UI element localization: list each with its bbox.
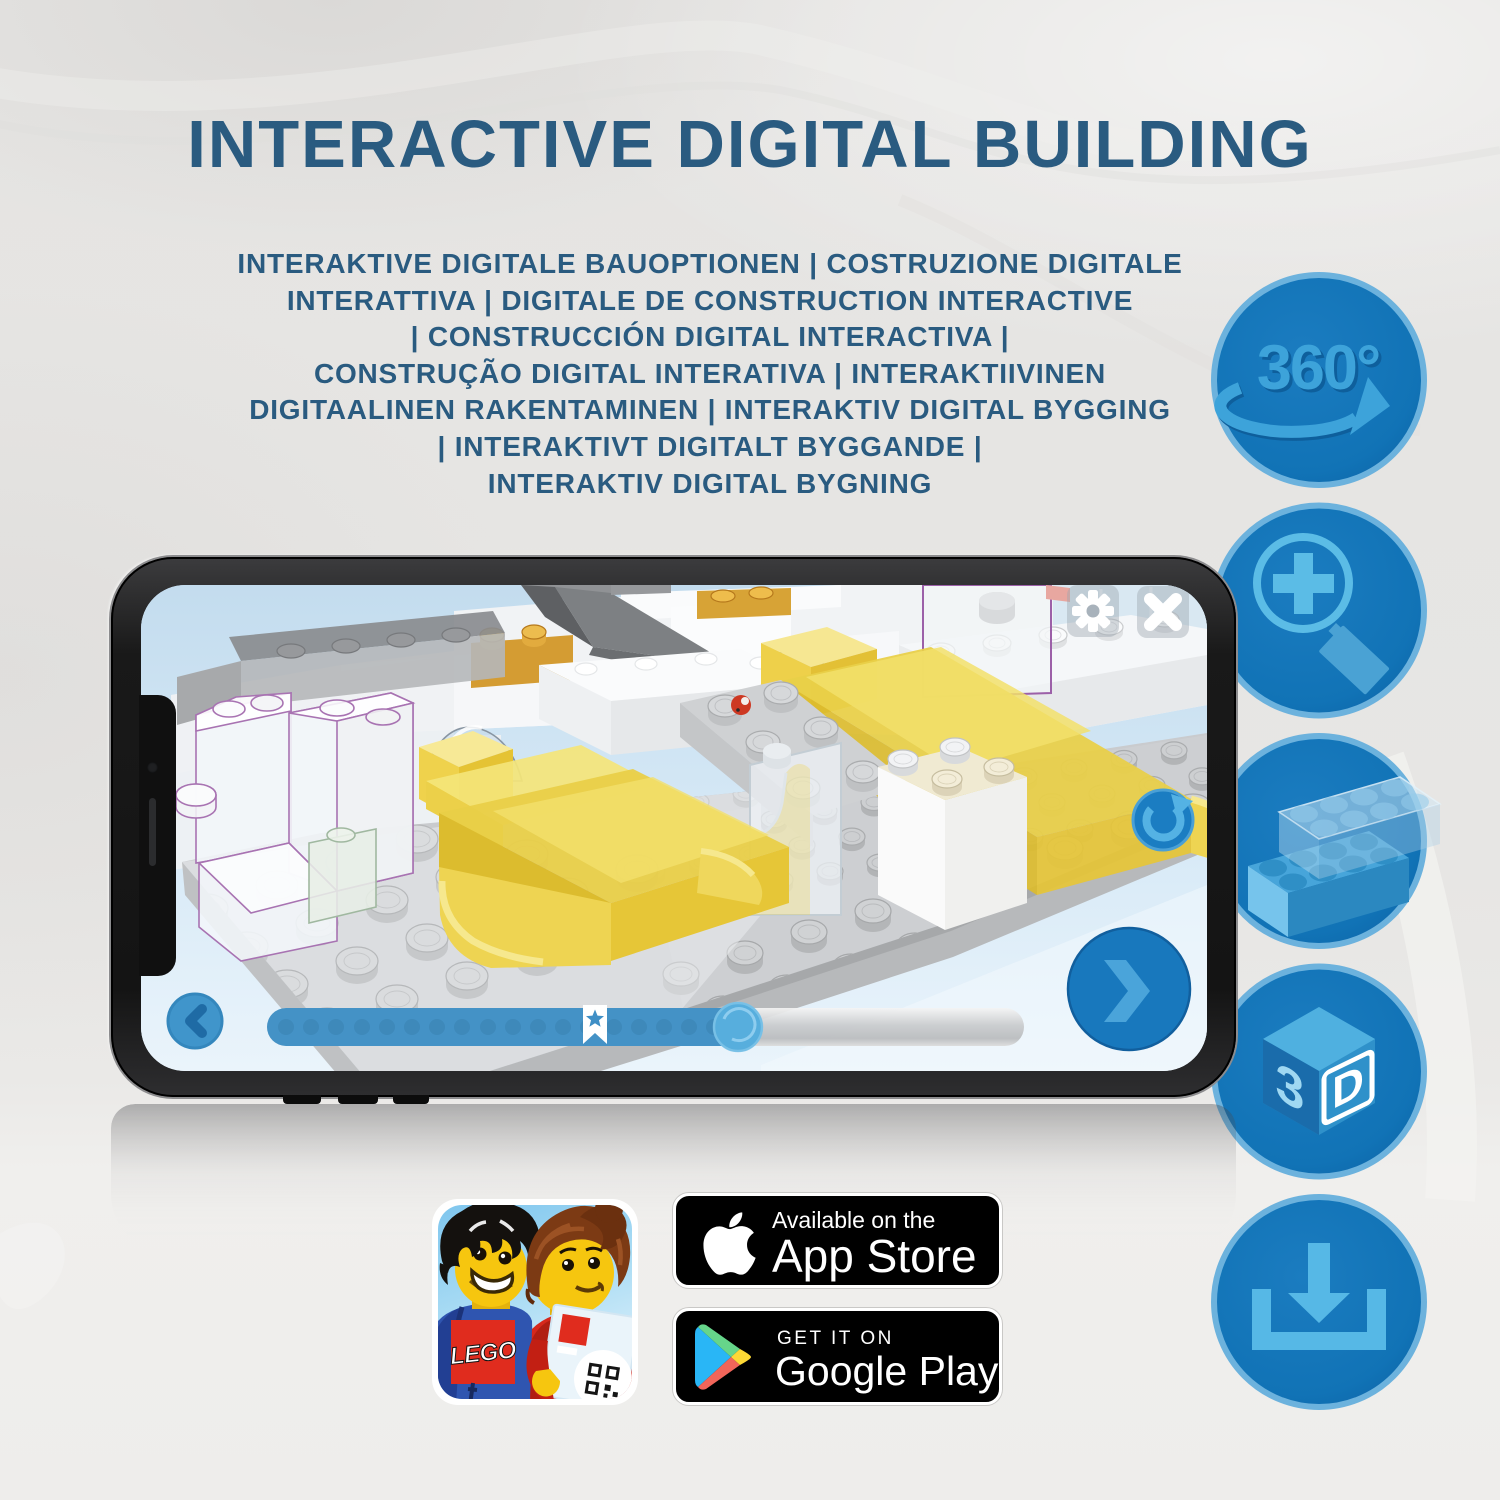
- svg-text:360°: 360°: [1257, 333, 1379, 403]
